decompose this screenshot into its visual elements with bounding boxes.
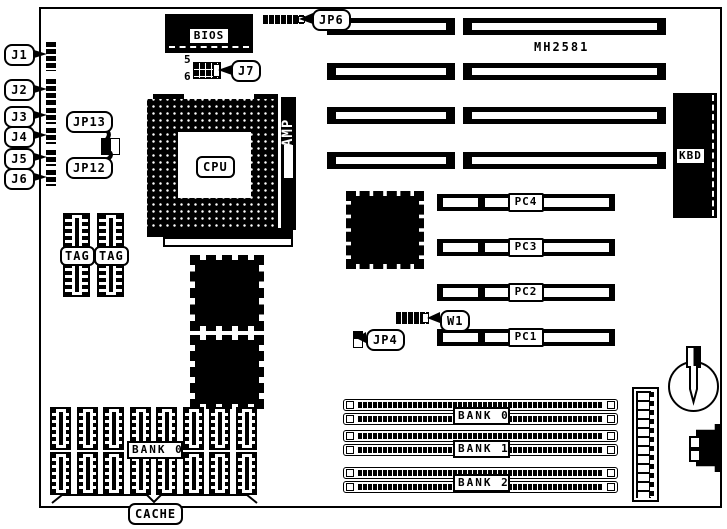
pci-slot: PC2 — [437, 284, 615, 301]
cache-sram-socket — [50, 452, 71, 495]
jp6-callout: JP6 — [312, 9, 351, 31]
cache-sram-socket — [209, 452, 230, 495]
isa-slot-segment — [327, 107, 455, 124]
cache-sram-socket — [183, 452, 204, 495]
j3-header — [46, 108, 56, 124]
lever-window — [284, 145, 293, 178]
cache-sram-socket — [77, 452, 98, 495]
j1-header — [46, 42, 56, 71]
pci-slot-label: PC1 — [508, 328, 544, 347]
j1-callout: J1 — [4, 44, 35, 66]
chipset-qfp-chip — [190, 255, 264, 331]
j7-pin6-number: 6 — [184, 70, 193, 83]
cpu-socket-lever-strip: AMP — [281, 97, 296, 230]
isa-slot-segment — [327, 63, 455, 80]
battery — [668, 361, 719, 412]
power-connector-pins — [636, 391, 651, 498]
cpu-socket-base — [147, 228, 293, 237]
din-connector-pin — [689, 436, 701, 449]
jp13-callout: JP13 — [66, 111, 113, 133]
simm-bank-label: BANK 2 — [453, 474, 510, 492]
j2-header — [46, 79, 56, 106]
motherboard-diagram: BIOS JP6 5 6 J7 MH2581 J1 J2 J3 J4 J5 J6… — [0, 0, 727, 529]
cpu-label: CPU — [196, 156, 235, 178]
chipset-qfp-chip — [346, 191, 424, 269]
chipset-qfp-chip — [190, 335, 264, 409]
power-connector — [632, 387, 659, 502]
power-connector-latches — [650, 392, 654, 497]
isa-slot-segment — [463, 152, 666, 169]
cache-sram-socket — [50, 407, 71, 450]
cache-bank-label: BANK 0 — [127, 441, 183, 459]
tag-label: TAG — [94, 246, 129, 266]
j5-callout: J5 — [4, 148, 35, 170]
bios-label: BIOS — [188, 27, 230, 45]
j7-pin5-number: 5 — [184, 53, 193, 66]
cache-sram-socket — [77, 407, 98, 450]
jp12-callout: JP12 — [66, 157, 113, 179]
tag-label: TAG — [60, 246, 95, 266]
j6-header — [46, 170, 56, 186]
pci-slot-label: PC4 — [508, 193, 544, 212]
pci-slot: PC4 — [437, 194, 615, 211]
simm-bank-label: BANK 1 — [453, 440, 510, 458]
w1-header — [396, 312, 429, 324]
bios-chip-notch — [169, 46, 249, 48]
cache-sram-socket — [236, 452, 257, 495]
jp6-header — [263, 15, 305, 24]
j3-callout: J3 — [4, 106, 35, 128]
isa-slot-segment — [327, 152, 455, 169]
j7-callout: J7 — [231, 60, 261, 82]
cpu-socket-bottom-bar — [163, 237, 293, 247]
cache-sram-socket — [209, 407, 230, 450]
isa-slot-segment — [463, 63, 666, 80]
j4-callout: J4 — [4, 126, 35, 148]
cache-sram-socket — [103, 407, 124, 450]
isa-slot-segment — [463, 107, 666, 124]
din-connector-pin — [689, 449, 701, 462]
w1-callout: W1 — [440, 310, 470, 332]
j6-callout: J6 — [4, 168, 35, 190]
jp12-jp13-jumper-block — [101, 138, 120, 155]
cache-sram-socket — [183, 407, 204, 450]
cache-callout: CACHE — [128, 503, 183, 525]
j7-jumper-block — [193, 62, 221, 79]
simm-bank-label: BANK 0 — [453, 407, 510, 425]
cache-sram-socket — [103, 452, 124, 495]
isa-slot-segment — [463, 18, 666, 35]
kbd-label: KBD — [677, 149, 704, 163]
j5-header — [46, 150, 56, 166]
keyboard-connector-edge — [712, 95, 714, 216]
board-model-text: MH2581 — [534, 40, 589, 54]
cache-sram-socket — [236, 407, 257, 450]
pci-slot-label: PC3 — [508, 238, 544, 257]
pci-slot: PC3 — [437, 239, 615, 256]
j2-callout: J2 — [4, 79, 35, 101]
jp4-jumper — [353, 331, 363, 348]
j4-header — [46, 128, 56, 144]
jp4-callout: JP4 — [366, 329, 405, 351]
pci-slot-label: PC2 — [508, 283, 544, 302]
